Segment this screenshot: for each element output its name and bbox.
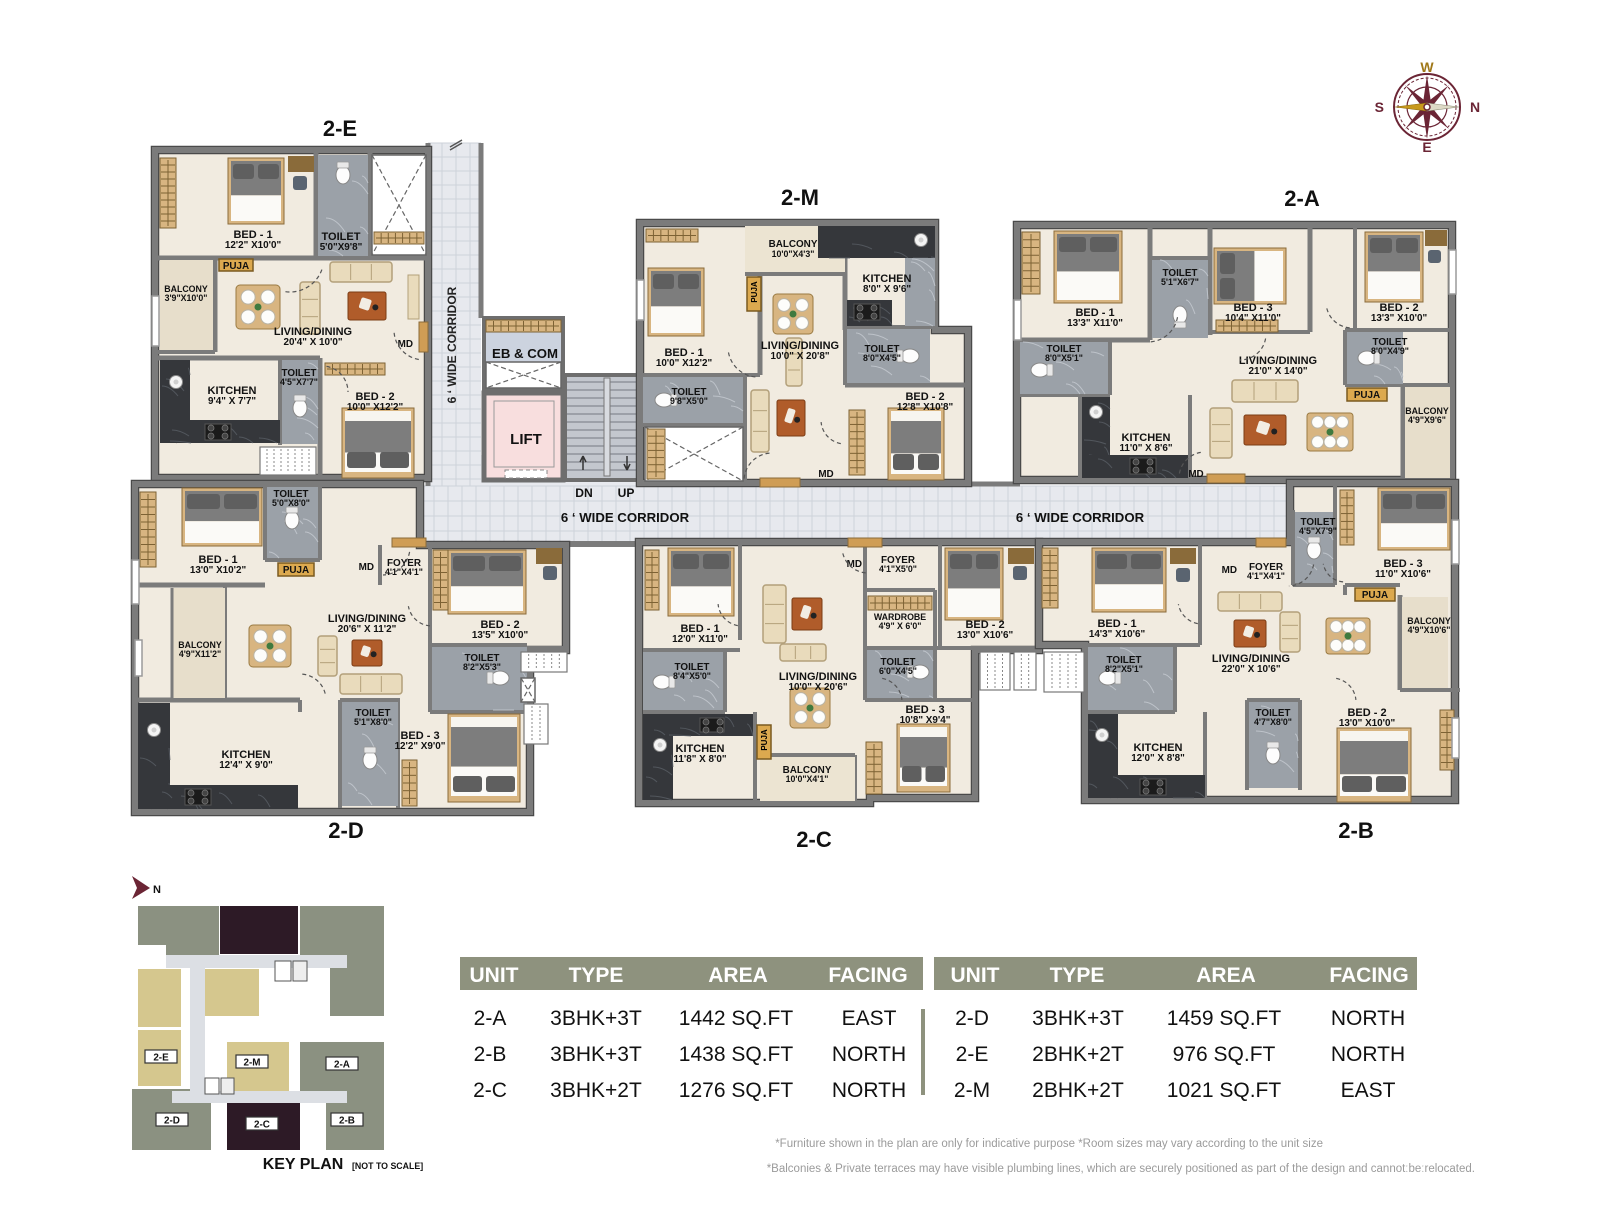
svg-text:9'8"X5'0": 9'8"X5'0" [670, 396, 708, 406]
svg-text:1459 SQ.FT: 1459 SQ.FT [1167, 1007, 1282, 1030]
svg-text:PUJA: PUJA [1354, 390, 1380, 401]
svg-text:2-A: 2-A [1284, 186, 1320, 211]
svg-text:10'8" X9'4": 10'8" X9'4" [900, 715, 951, 726]
svg-text:*Balconies & Private terraces: *Balconies & Private terraces may have v… [767, 1163, 1475, 1175]
svg-text:2-E: 2-E [956, 1043, 989, 1066]
svg-text:2-C: 2-C [796, 827, 832, 852]
svg-text:1438 SQ.FT: 1438 SQ.FT [679, 1043, 794, 1066]
svg-text:4'1"X4'1": 4'1"X4'1" [1247, 571, 1285, 581]
svg-text:FACING: FACING [828, 964, 907, 987]
svg-text:3BHK+2T: 3BHK+2T [550, 1079, 642, 1102]
svg-text:2-A: 2-A [334, 1060, 350, 1071]
svg-text:12'2" X9'0": 12'2" X9'0" [395, 741, 446, 752]
svg-text:6'0"X4'5": 6'0"X4'5" [879, 666, 917, 676]
svg-text:8'4"X5'0": 8'4"X5'0" [673, 671, 711, 681]
svg-text:AREA: AREA [708, 964, 768, 987]
svg-text:2-E: 2-E [323, 116, 357, 141]
svg-text:NORTH: NORTH [1331, 1007, 1405, 1030]
svg-text:1276 SQ.FT: 1276 SQ.FT [679, 1079, 794, 1102]
svg-text:NORTH: NORTH [832, 1043, 906, 1066]
svg-text:8'0"X4'5": 8'0"X4'5" [863, 353, 901, 363]
svg-text:8'2"X5'3": 8'2"X5'3" [463, 662, 501, 672]
svg-text:EAST: EAST [842, 1007, 897, 1030]
svg-text:PUJA: PUJA [750, 281, 759, 303]
svg-text:10'0"X4'3": 10'0"X4'3" [772, 249, 815, 259]
svg-text:S: S [1375, 99, 1384, 115]
svg-text:PUJA: PUJA [223, 261, 249, 272]
svg-text:2-M: 2-M [243, 1058, 260, 1069]
svg-text:3BHK+3T: 3BHK+3T [1032, 1007, 1124, 1030]
svg-text:N: N [1470, 99, 1480, 115]
svg-text:2BHK+2T: 2BHK+2T [1032, 1043, 1124, 1066]
svg-text:3'9"X10'0": 3'9"X10'0" [165, 293, 208, 303]
svg-text:2-B: 2-B [339, 1116, 355, 1127]
svg-text:12'8" X10'8": 12'8" X10'8" [897, 402, 954, 413]
svg-text:2-C: 2-C [254, 1120, 270, 1131]
svg-text:13'0" X10'0": 13'0" X10'0" [1339, 718, 1396, 729]
svg-text:NORTH: NORTH [1331, 1043, 1405, 1066]
svg-text:4'9"X9'6": 4'9"X9'6" [1408, 415, 1446, 425]
svg-text:6 ‘ WIDE CORRIDOR: 6 ‘ WIDE CORRIDOR [445, 286, 459, 403]
svg-text:UP: UP [618, 486, 635, 500]
svg-text:5'1"X6'7": 5'1"X6'7" [1161, 277, 1199, 287]
svg-text:8'0"X5'1": 8'0"X5'1" [1045, 353, 1083, 363]
svg-text:13'0" X10'6": 13'0" X10'6" [957, 630, 1014, 641]
svg-text:9'4" X 7'7": 9'4" X 7'7" [208, 396, 256, 407]
svg-text:8'2"X5'1": 8'2"X5'1" [1105, 664, 1143, 674]
svg-text:22'0" X 10'6": 22'0" X 10'6" [1221, 664, 1280, 675]
svg-text:12'0" X 8'8": 12'0" X 8'8" [1131, 753, 1185, 764]
svg-text:5'0"X8'0": 5'0"X8'0" [272, 498, 310, 508]
svg-text:4'5"X7'9": 4'5"X7'9" [1299, 526, 1337, 536]
svg-text:2BHK+2T: 2BHK+2T [1032, 1079, 1124, 1102]
svg-text:PUJA: PUJA [760, 729, 769, 751]
svg-text:4'5"X7'7": 4'5"X7'7" [280, 377, 318, 387]
svg-text:13'5" X10'0": 13'5" X10'0" [472, 630, 529, 641]
svg-text:11'0" X 8'6": 11'0" X 8'6" [1119, 443, 1172, 454]
svg-text:12'4" X 9'0": 12'4" X 9'0" [219, 760, 273, 771]
svg-text:PUJA: PUJA [283, 565, 309, 576]
svg-text:14'3" X10'6": 14'3" X10'6" [1089, 629, 1146, 640]
svg-text:UNIT: UNIT [951, 964, 1000, 987]
svg-text:KEY PLAN: KEY PLAN [263, 1156, 344, 1173]
svg-text:TYPE: TYPE [1050, 964, 1105, 987]
svg-text:13'0" X10'2": 13'0" X10'2" [190, 565, 247, 576]
svg-text:11'8" X 8'0": 11'8" X 8'0" [673, 754, 726, 765]
svg-text:6 ‘ WIDE CORRIDOR: 6 ‘ WIDE CORRIDOR [561, 510, 690, 525]
svg-text:10'0" X 20'8": 10'0" X 20'8" [770, 351, 829, 362]
svg-text:13'3" X10'0": 13'3" X10'0" [1371, 313, 1428, 324]
svg-text:1021 SQ.FT: 1021 SQ.FT [1167, 1079, 1282, 1102]
svg-text:1442 SQ.FT: 1442 SQ.FT [679, 1007, 794, 1030]
svg-text:MD: MD [1222, 565, 1237, 576]
svg-text:10'0" X12'2": 10'0" X12'2" [347, 402, 404, 413]
svg-text:10'0"X4'1": 10'0"X4'1" [786, 774, 829, 784]
svg-text:13'3" X11'0": 13'3" X11'0" [1067, 318, 1123, 329]
svg-text:4'1"X5'0": 4'1"X5'0" [879, 564, 917, 574]
svg-text:4'7"X8'0": 4'7"X8'0" [1254, 717, 1292, 727]
svg-text:20'6" X 11'2": 20'6" X 11'2" [338, 624, 397, 635]
svg-text:11'0" X10'6": 11'0" X10'6" [1375, 569, 1431, 580]
svg-text:*Furniture shown in the plan a: *Furniture shown in the plan are only fo… [775, 1138, 1323, 1150]
svg-text:EB & COM: EB & COM [492, 346, 558, 361]
svg-text:12'2" X10'0": 12'2" X10'0" [225, 240, 282, 251]
svg-text:4'9" X 6'0": 4'9" X 6'0" [879, 621, 922, 631]
svg-text:2-D: 2-D [164, 1116, 180, 1127]
svg-text:20'4" X 10'0": 20'4" X 10'0" [283, 337, 342, 348]
svg-text:2-B: 2-B [1338, 818, 1373, 843]
svg-text:5'1"X8'0": 5'1"X8'0" [354, 717, 392, 727]
svg-text:2-E: 2-E [153, 1053, 169, 1064]
svg-text:TYPE: TYPE [569, 964, 624, 987]
svg-text:2-M: 2-M [781, 185, 819, 210]
svg-text:2-A: 2-A [474, 1007, 507, 1030]
svg-text:2-M: 2-M [954, 1079, 990, 1102]
svg-text:976 SQ.FT: 976 SQ.FT [1173, 1043, 1276, 1066]
svg-text:DN: DN [575, 486, 592, 500]
svg-text:MD: MD [818, 469, 833, 480]
svg-text:8'0" X 9'6": 8'0" X 9'6" [863, 284, 911, 295]
svg-text:3BHK+3T: 3BHK+3T [550, 1007, 642, 1030]
svg-text:10'0" X12'2": 10'0" X12'2" [656, 358, 713, 369]
svg-text:LIFT: LIFT [510, 431, 542, 448]
svg-text:MD: MD [1188, 469, 1203, 480]
svg-text:MD: MD [847, 559, 862, 570]
svg-text:N: N [153, 884, 161, 896]
svg-text:4'1"X4'1": 4'1"X4'1" [385, 567, 423, 577]
svg-text:12'0" X11'0": 12'0" X11'0" [672, 634, 728, 645]
svg-text:2-B: 2-B [474, 1043, 507, 1066]
svg-text:FACING: FACING [1329, 964, 1408, 987]
svg-text:2-C: 2-C [473, 1079, 507, 1102]
svg-text:6 ‘ WIDE CORRIDOR: 6 ‘ WIDE CORRIDOR [1016, 510, 1145, 525]
svg-text:W: W [1420, 59, 1434, 75]
svg-text:10'4" X11'0": 10'4" X11'0" [1225, 313, 1281, 324]
svg-text:UNIT: UNIT [470, 964, 519, 987]
svg-text:[NOT TO SCALE]: [NOT TO SCALE] [352, 1161, 423, 1171]
svg-text:4'9"X11'2": 4'9"X11'2" [179, 649, 221, 659]
svg-text:2-D: 2-D [955, 1007, 989, 1030]
svg-text:2-D: 2-D [328, 818, 363, 843]
svg-text:21'0" X 14'0": 21'0" X 14'0" [1248, 366, 1307, 377]
svg-text:AREA: AREA [1196, 964, 1256, 987]
svg-text:EAST: EAST [1341, 1079, 1396, 1102]
svg-text:8'0"X4'9": 8'0"X4'9" [1371, 346, 1409, 356]
svg-text:MD: MD [359, 562, 374, 573]
svg-text:PUJA: PUJA [1362, 590, 1388, 601]
svg-text:E: E [1422, 139, 1431, 155]
svg-text:NORTH: NORTH [832, 1079, 906, 1102]
svg-text:3BHK+3T: 3BHK+3T [550, 1043, 642, 1066]
svg-text:4'9"X10'6": 4'9"X10'6" [1408, 625, 1451, 635]
svg-text:5'0"X9'8": 5'0"X9'8" [320, 242, 363, 253]
svg-text:10'0" X 20'6": 10'0" X 20'6" [788, 682, 847, 693]
